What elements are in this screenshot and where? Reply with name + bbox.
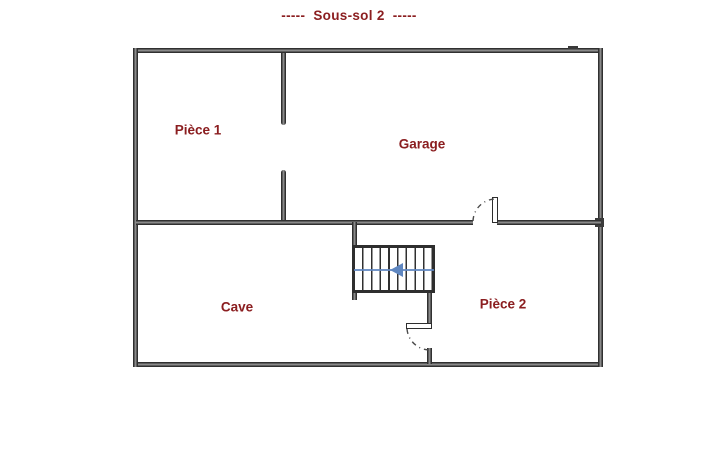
wall-joint-mark [568, 46, 578, 49]
door-arc-cave [407, 329, 429, 350]
wall-door-stub [427, 348, 432, 364]
room-label-piece2: Pièce 2 [480, 297, 527, 312]
outer-wall-top [133, 48, 603, 53]
stair-direction-arrow-icon [350, 257, 438, 283]
room-label-piece1: Pièce 1 [175, 123, 222, 138]
outer-wall-bottom [133, 362, 603, 367]
floor-title: ----- Sous-sol 2 ----- [281, 8, 416, 23]
outer-wall-left [133, 48, 138, 367]
room-label-garage: Garage [399, 137, 446, 152]
wall-mid-horizontal-right [497, 220, 601, 225]
wall-mid-horizontal-left [136, 220, 473, 225]
wall-piece1-garage-upper [281, 53, 286, 125]
door-arcs [0, 0, 722, 462]
wall-stair-right [427, 289, 432, 327]
floor-plan: ----- Sous-sol 2 ----- Pièce 1 Garage Ca… [0, 0, 722, 462]
door-leaf-cave [406, 323, 432, 329]
door-arc-garage [473, 199, 494, 221]
wall-piece1-garage-lower [281, 170, 286, 222]
door-leaf-garage [492, 197, 498, 223]
room-label-cave: Cave [221, 300, 253, 315]
outer-wall-right [598, 48, 603, 367]
